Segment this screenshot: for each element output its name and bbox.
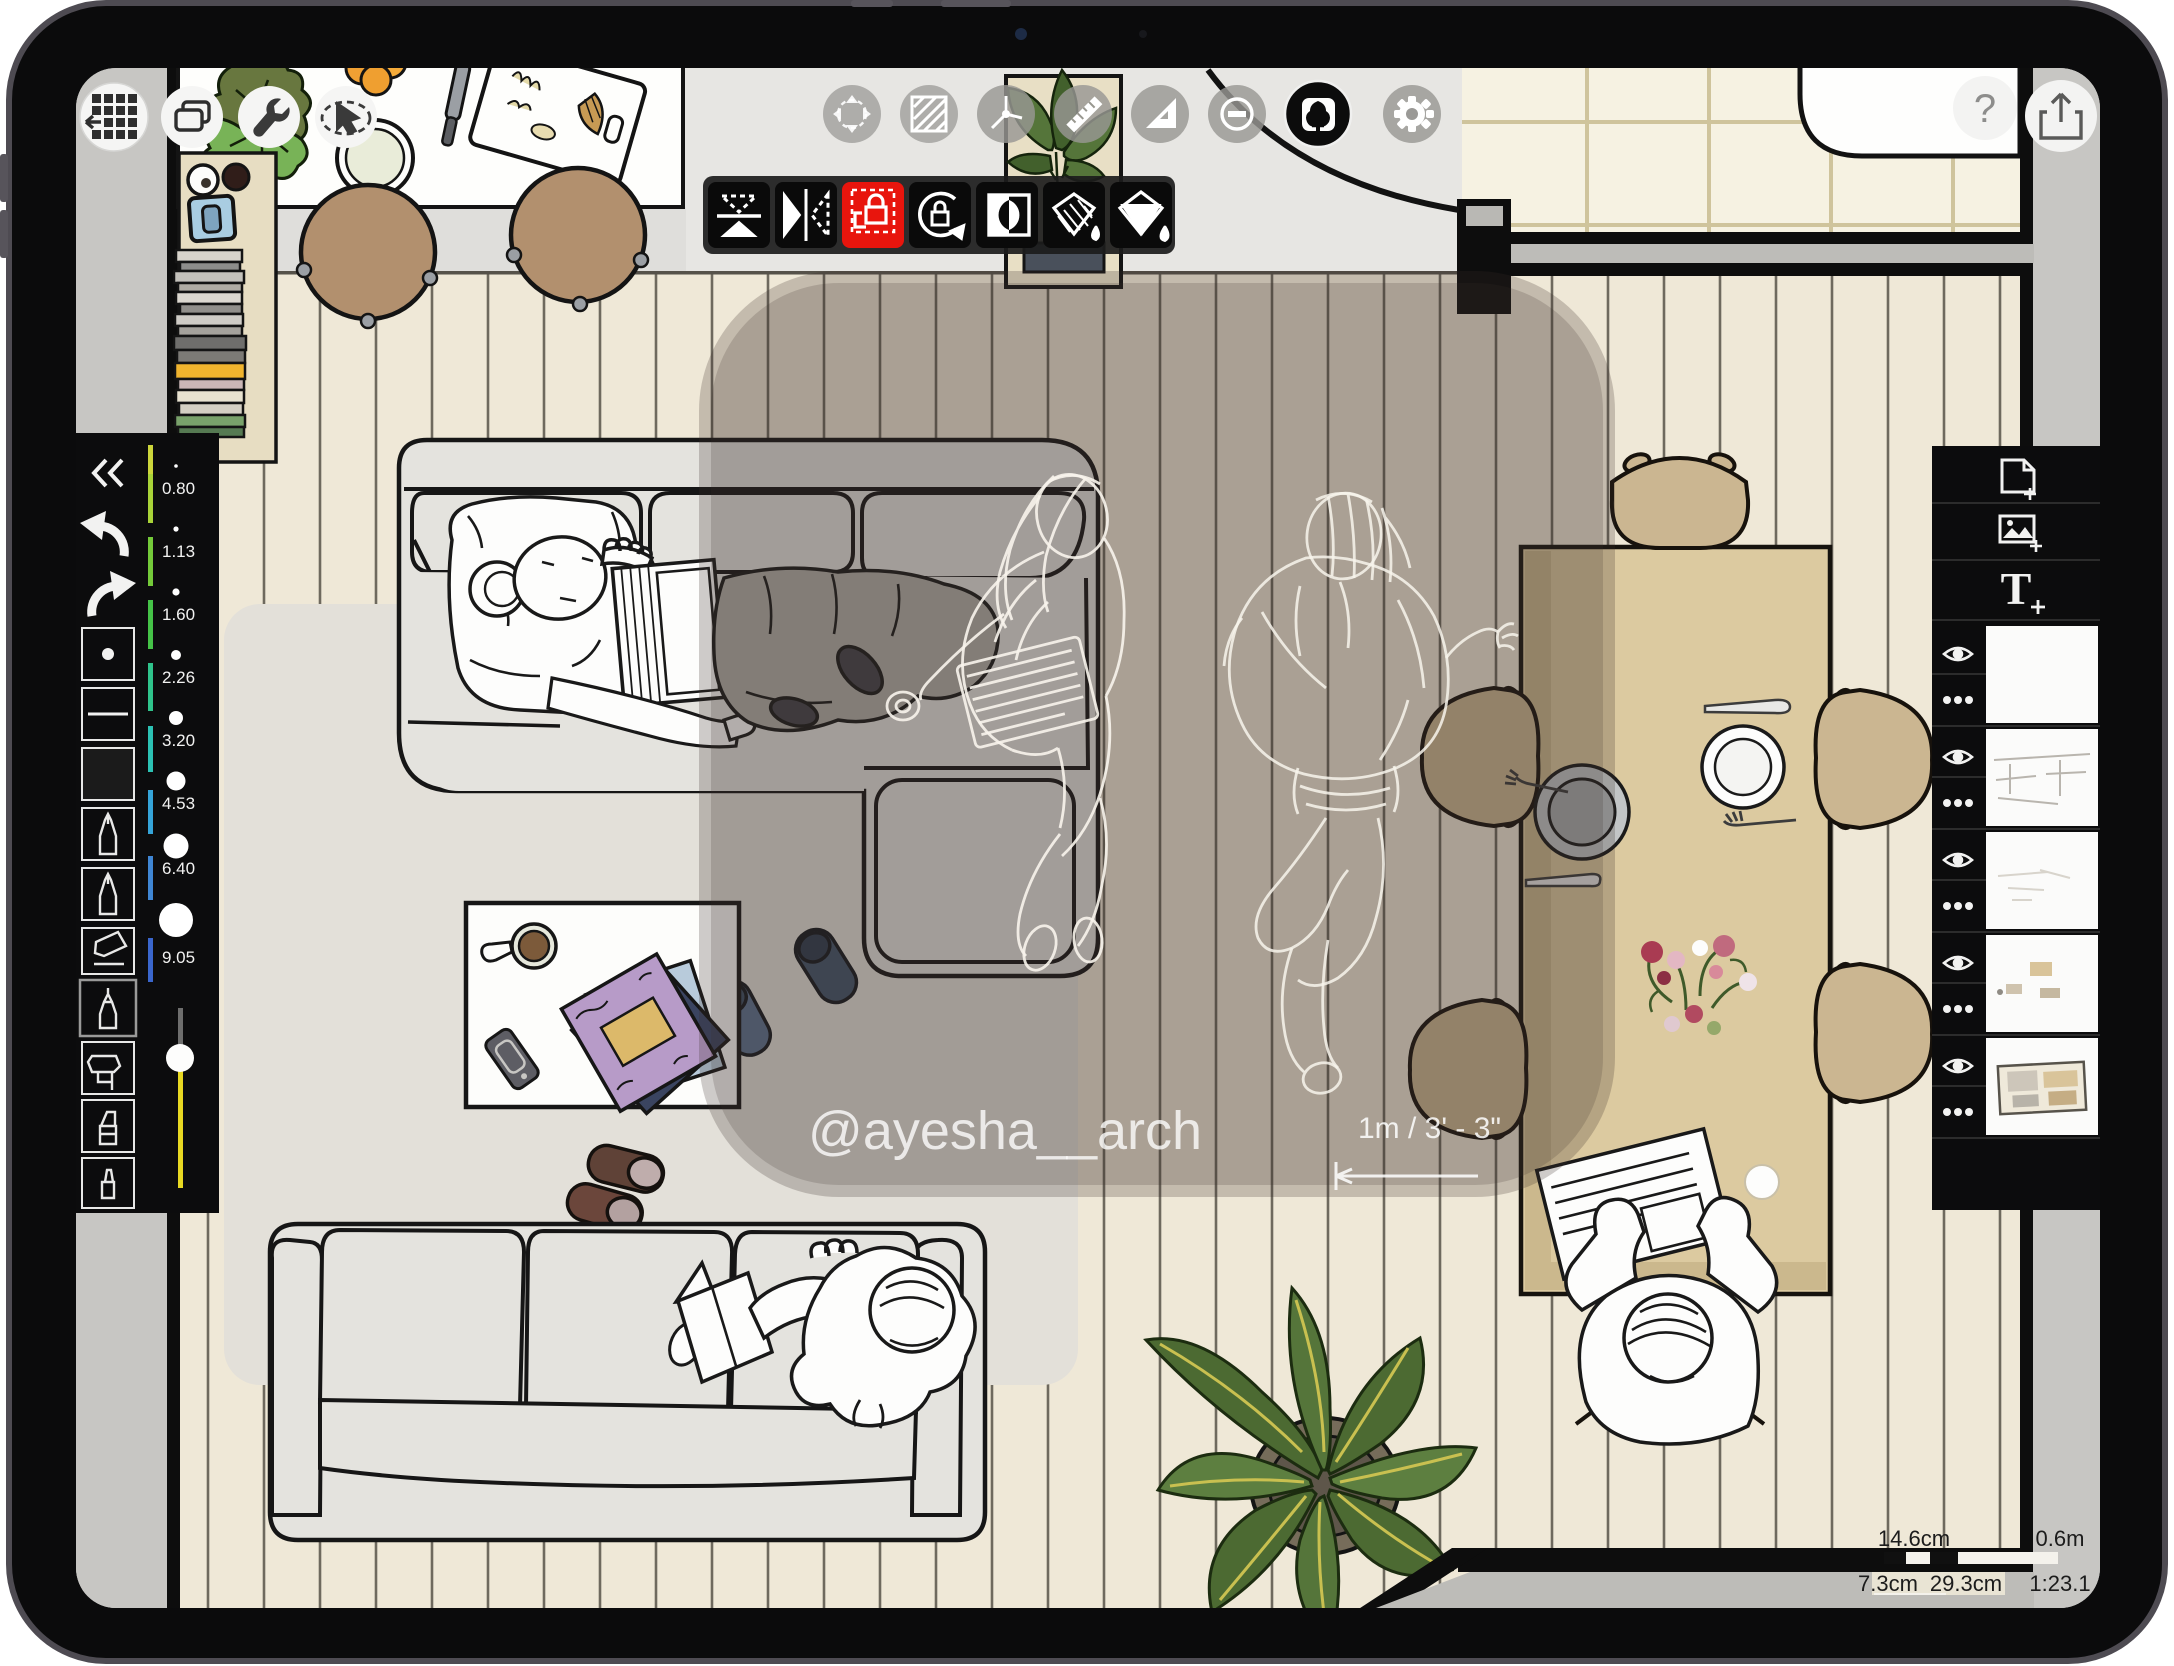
svg-text:29.3cm: 29.3cm: [1930, 1571, 2002, 1596]
svg-text:6.40: 6.40: [162, 859, 195, 878]
svg-text:1m / 3' - 3": 1m / 3' - 3": [1358, 1112, 1501, 1145]
svg-text:0.80: 0.80: [162, 479, 195, 498]
svg-text:14.6cm: 14.6cm: [1878, 1526, 1950, 1551]
svg-text:7.3cm: 7.3cm: [1858, 1571, 1918, 1596]
svg-text:3.20: 3.20: [162, 731, 195, 750]
svg-text:@ayesha__arch: @ayesha__arch: [808, 1101, 1202, 1161]
svg-text:1:23.1: 1:23.1: [2029, 1571, 2090, 1596]
svg-text:1.13: 1.13: [162, 542, 195, 561]
svg-text:4.53: 4.53: [162, 794, 195, 813]
svg-text:1.60: 1.60: [162, 605, 195, 624]
svg-text:0.6m: 0.6m: [2036, 1526, 2085, 1551]
svg-text:T: T: [2001, 563, 2032, 614]
svg-text:?: ?: [1974, 87, 1996, 131]
svg-text:9.05: 9.05: [162, 948, 195, 967]
svg-text:2.26: 2.26: [162, 668, 195, 687]
